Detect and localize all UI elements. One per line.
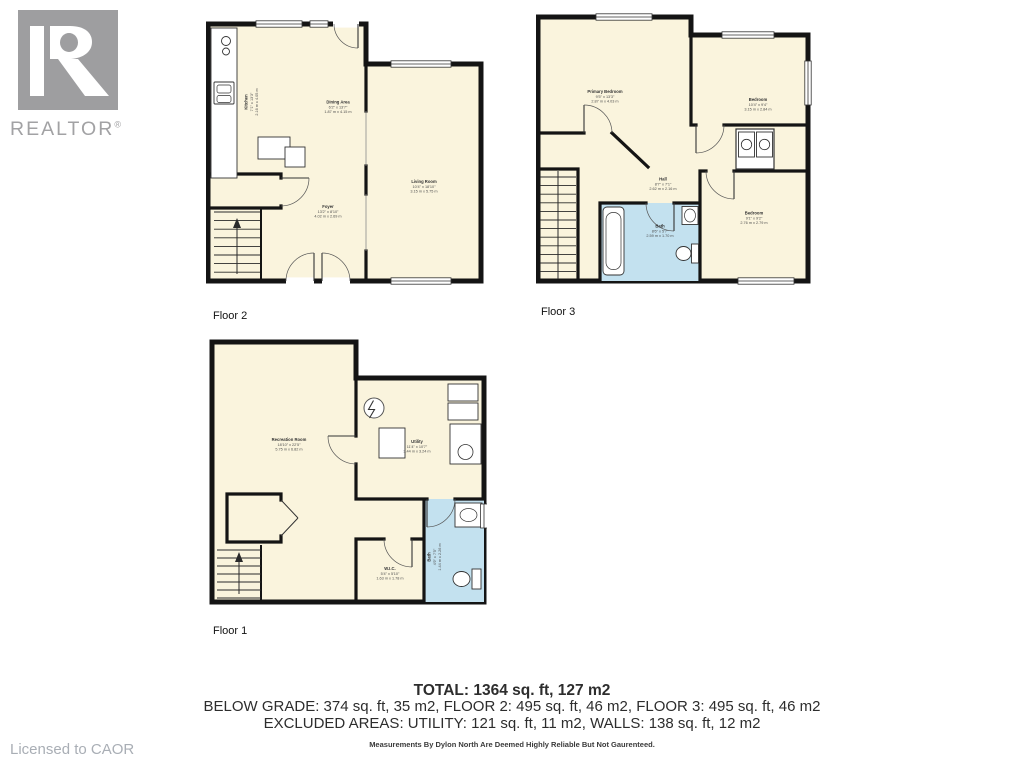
svg-text:1.63 m x 1.78 m: 1.63 m x 1.78 m — [376, 576, 403, 580]
svg-text:3.15 m x 5.75 m: 3.15 m x 5.75 m — [410, 189, 437, 193]
electrical-panel-icon — [364, 398, 384, 418]
svg-text:5'4" x 5'10": 5'4" x 5'10" — [381, 572, 400, 576]
breakdown-text: BELOW GRADE: 374 sq. ft, 35 m2, FLOOR 2:… — [0, 699, 1024, 716]
svg-text:2.59 m x 1.70 m: 2.59 m x 1.70 m — [646, 234, 673, 238]
svg-text:4'9" x 7'5": 4'9" x 7'5" — [433, 548, 437, 565]
floor3-label: Floor 3 — [541, 306, 575, 318]
svg-text:2.16 m x 4.05 m: 2.16 m x 4.05 m — [255, 88, 259, 115]
svg-text:Dining Area: Dining Area — [326, 100, 350, 105]
realtor-logo-text: REALTOR® — [8, 118, 148, 141]
svg-text:Recreation Room: Recreation Room — [272, 437, 307, 442]
svg-text:7'1" x 13'3": 7'1" x 13'3" — [250, 92, 254, 111]
logo-r-stem — [30, 26, 44, 96]
licensed-text: Licensed to CAOR — [10, 741, 134, 758]
floor2-plan: Kitchen 7'1" x 13'3" 2.16 m x 4.05 m Din… — [206, 16, 486, 296]
svg-text:2.87 m x 4.03 m: 2.87 m x 4.03 m — [591, 99, 618, 103]
appliance — [448, 403, 478, 420]
realtor-logo-icon — [8, 8, 128, 112]
svg-text:11'4" x 10'7": 11'4" x 10'7" — [407, 445, 428, 449]
svg-text:2.76 m x 2.79 m: 2.76 m x 2.79 m — [740, 221, 767, 225]
kitchen-island — [285, 147, 305, 167]
logo-r-counter — [60, 33, 78, 52]
svg-text:1.87 m x 4.15 m: 1.87 m x 4.15 m — [324, 110, 351, 114]
disclaimer-text: Measurements By Dylon North Are Deemed H… — [0, 740, 1024, 749]
svg-text:Bath: Bath — [655, 224, 665, 229]
svg-text:Kitchen: Kitchen — [243, 94, 248, 110]
svg-text:Living Room: Living Room — [411, 179, 437, 184]
appliance — [448, 384, 478, 401]
svg-text:1.44 m x 2.26 m: 1.44 m x 2.26 m — [438, 543, 442, 570]
svg-text:5.75 m x 6.82 m: 5.75 m x 6.82 m — [275, 447, 302, 451]
total-area-text: TOTAL: 1364 sq. ft, 127 m2 — [0, 682, 1024, 699]
svg-text:Utility: Utility — [411, 439, 423, 444]
svg-text:Bedroom: Bedroom — [745, 211, 764, 216]
toilet-icon — [692, 244, 699, 263]
svg-text:10'4" x 9'4": 10'4" x 9'4" — [749, 103, 768, 107]
room-label-living: Living Room 10'4" x 18'10" 3.15 m x 5.75… — [410, 179, 437, 193]
svg-text:13'2" x 8'10": 13'2" x 8'10" — [318, 210, 339, 214]
svg-text:10'4" x 18'10": 10'4" x 18'10" — [413, 185, 437, 189]
svg-text:8'7" x 7'1": 8'7" x 7'1" — [655, 182, 672, 186]
svg-text:4.02 m x 2.69 m: 4.02 m x 2.69 m — [314, 214, 341, 218]
svg-text:W.I.C.: W.I.C. — [384, 566, 395, 571]
svg-text:Primary Bedroom: Primary Bedroom — [587, 89, 622, 94]
svg-text:9'5" x 13'3": 9'5" x 13'3" — [596, 95, 615, 99]
floor1-label: Floor 1 — [213, 625, 247, 637]
toilet-icon — [472, 569, 481, 589]
floor1-plan: Recreation Room 18'10" x 22'5" 5.75 m x … — [209, 336, 487, 610]
floorplan-page: REALTOR® — [0, 0, 1024, 768]
svg-text:2.62 m x 2.16 m: 2.62 m x 2.16 m — [649, 187, 676, 191]
svg-text:Bath: Bath — [426, 552, 431, 562]
svg-text:18'10" x 22'5": 18'10" x 22'5" — [278, 443, 302, 447]
svg-text:3.44 m x 3.24 m: 3.44 m x 3.24 m — [403, 449, 430, 453]
laundry-tub — [450, 424, 481, 464]
excluded-areas-text: EXCLUDED AREAS: UTILITY: 121 sq. ft, 11 … — [0, 716, 1024, 733]
svg-text:9'1" x 9'2": 9'1" x 9'2" — [746, 216, 763, 220]
floor3-plan: Primary Bedroom 9'5" x 13'3" 2.87 m x 4.… — [536, 13, 812, 291]
realtor-logo: REALTOR® — [8, 8, 148, 141]
svg-text:3.15 m x 2.84 m: 3.15 m x 2.84 m — [744, 107, 771, 111]
floor3-laundry — [736, 129, 774, 169]
floor2-label: Floor 2 — [213, 310, 247, 322]
svg-text:Foyer: Foyer — [322, 204, 334, 209]
svg-text:Bedroom: Bedroom — [749, 97, 768, 102]
area-summary: TOTAL: 1364 sq. ft, 127 m2 BELOW GRADE: … — [0, 682, 1024, 749]
svg-text:Hall: Hall — [659, 177, 667, 182]
svg-text:6'2" x 13'7": 6'2" x 13'7" — [329, 105, 348, 109]
registered-mark: ® — [114, 120, 121, 130]
bath-sink-icon — [455, 503, 482, 527]
svg-text:8'6" x 5'7": 8'6" x 5'7" — [652, 229, 669, 233]
utility-box — [379, 428, 405, 458]
